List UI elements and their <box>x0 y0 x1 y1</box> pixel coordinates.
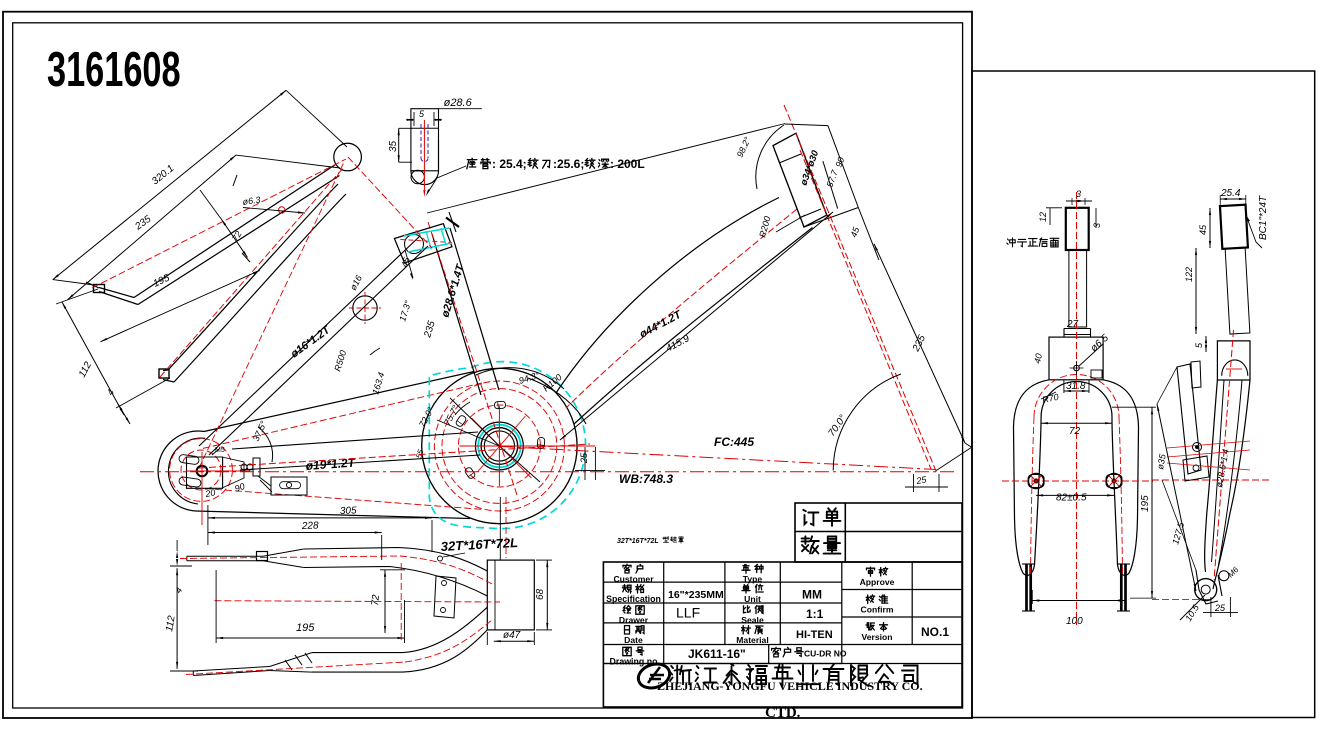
svg-text:FC:445: FC:445 <box>714 435 754 449</box>
svg-text:Type: Type <box>743 574 763 584</box>
svg-text:16"*235MM: 16"*235MM <box>668 589 724 601</box>
svg-text:BC1"*24T: BC1"*24T <box>1258 195 1269 240</box>
svg-text:CTD.: CTD. <box>765 705 801 721</box>
svg-text:Specification: Specification <box>606 594 661 604</box>
svg-text:68: 68 <box>535 588 546 600</box>
svg-text:305: 305 <box>340 505 357 517</box>
svg-text:Version: Version <box>861 632 892 642</box>
svg-text:45: 45 <box>1198 224 1208 235</box>
svg-text:31.8: 31.8 <box>1066 381 1086 392</box>
svg-text:Material: Material <box>736 635 768 645</box>
svg-text:ø47: ø47 <box>503 630 521 641</box>
svg-text:MM: MM <box>802 588 822 602</box>
svg-text:25: 25 <box>1214 603 1226 613</box>
svg-text:3: 3 <box>1076 189 1081 199</box>
svg-text:Drawer: Drawer <box>619 615 649 625</box>
svg-text:228: 228 <box>301 520 319 532</box>
svg-text:195: 195 <box>1140 495 1151 512</box>
svg-text:ZHEJIANG-YONGFU VEHICLE INDUST: ZHEJIANG-YONGFU VEHICLE INDUSTRY CO. <box>657 679 923 693</box>
svg-text:20: 20 <box>204 487 217 499</box>
svg-text:Confirm: Confirm <box>861 604 894 614</box>
svg-text:32T*16T*72L: 32T*16T*72L <box>617 538 659 545</box>
svg-text:40: 40 <box>1032 353 1044 365</box>
svg-text::25.6;: :25.6; <box>553 157 584 171</box>
svg-text:100: 100 <box>1066 616 1083 627</box>
svg-text:72: 72 <box>370 594 382 606</box>
svg-text:CU-DR NO: CU-DR NO <box>804 649 847 659</box>
svg-text:ø28.6: ø28.6 <box>444 97 473 109</box>
svg-text:NO.1: NO.1 <box>921 625 949 639</box>
svg-text:: 200L: : 200L <box>610 157 645 171</box>
svg-text:: 25.4;: : 25.4; <box>492 157 527 171</box>
svg-text:Approve: Approve <box>860 577 895 587</box>
svg-text:Unit: Unit <box>744 594 761 604</box>
svg-text:35: 35 <box>388 140 399 152</box>
svg-text:1:1: 1:1 <box>806 607 824 621</box>
svg-text:Seale: Seale <box>741 615 764 625</box>
svg-text:3161608: 3161608 <box>47 42 181 97</box>
svg-text:HI-TEN: HI-TEN <box>796 629 833 641</box>
svg-text:3: 3 <box>1092 223 1102 228</box>
svg-text:M5: M5 <box>215 447 225 454</box>
svg-text:82±0.5: 82±0.5 <box>1056 493 1087 504</box>
svg-text:122: 122 <box>1184 267 1194 282</box>
svg-text:Date: Date <box>624 635 643 645</box>
svg-text:JK611-16": JK611-16" <box>688 647 746 661</box>
svg-text:25: 25 <box>579 452 589 464</box>
svg-text:27: 27 <box>1066 319 1079 330</box>
svg-text:WB:748.3: WB:748.3 <box>619 472 673 486</box>
svg-text:72: 72 <box>1069 426 1081 437</box>
svg-text:195: 195 <box>296 622 315 634</box>
svg-text:LLF: LLF <box>676 605 700 621</box>
svg-text:12: 12 <box>1038 212 1048 222</box>
svg-text:25.4: 25.4 <box>1220 188 1241 199</box>
svg-text:Customer: Customer <box>613 574 654 584</box>
